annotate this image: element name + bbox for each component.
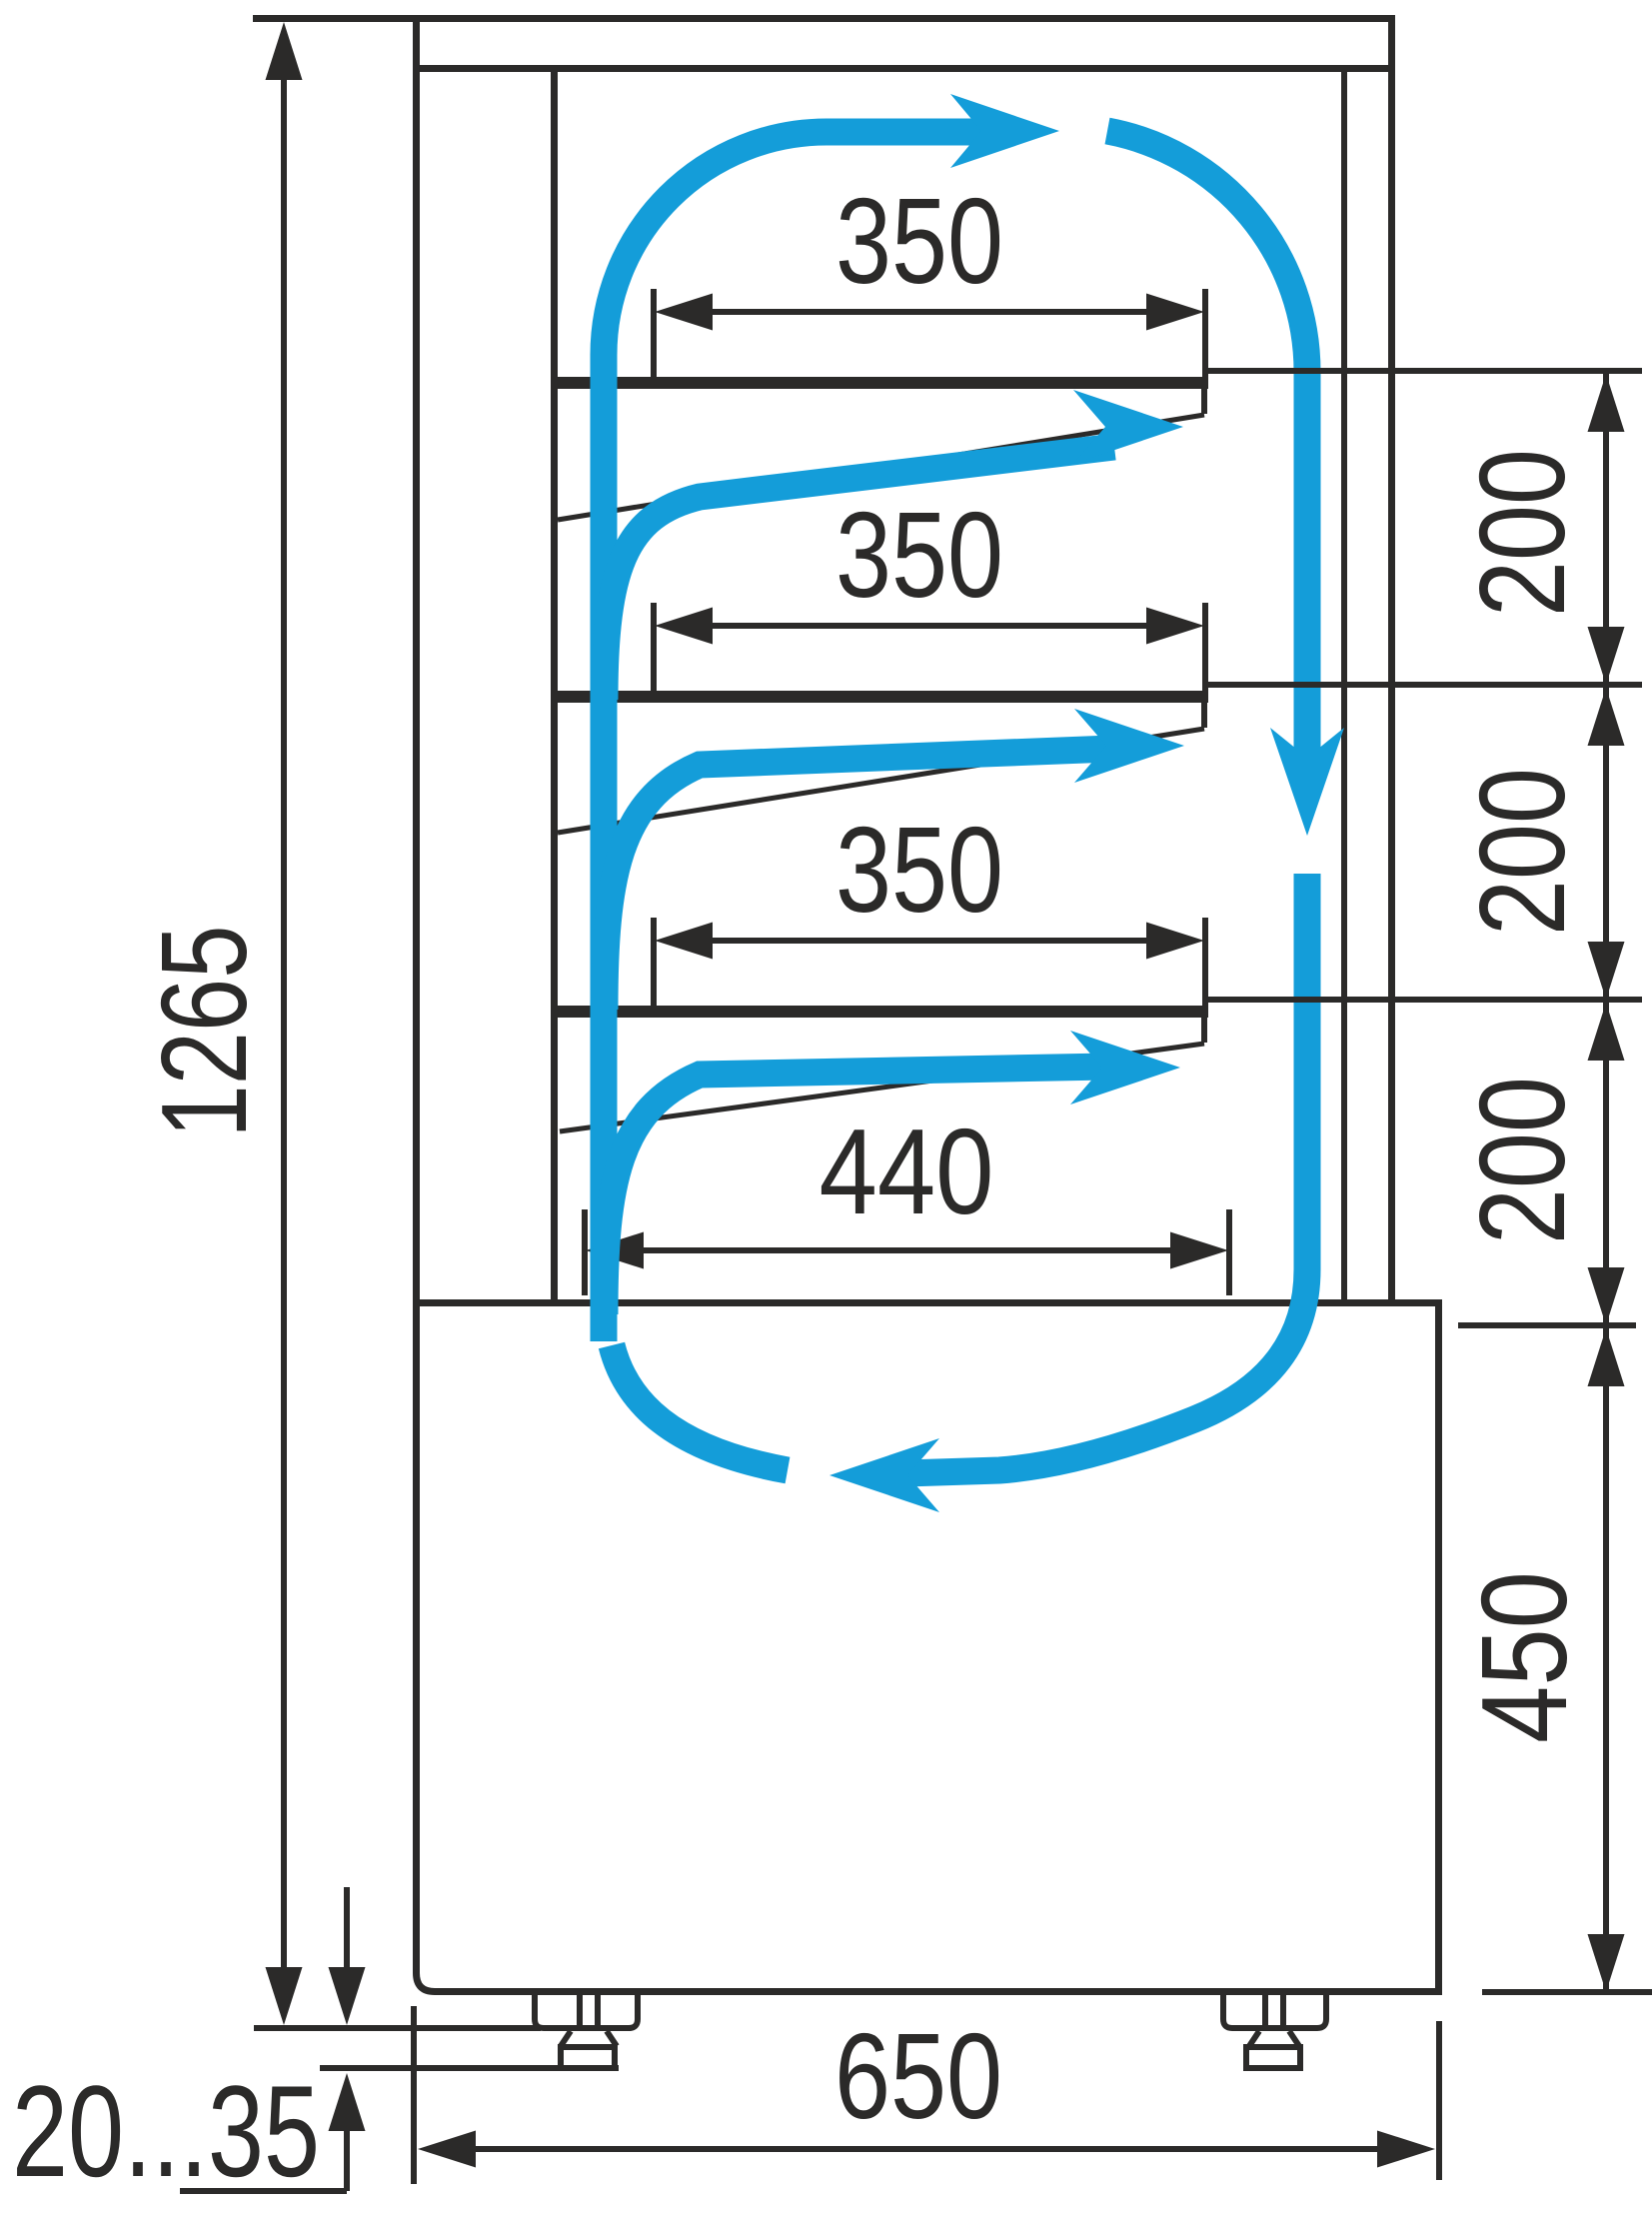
svg-text:1265: 1265 [136,926,272,1138]
svg-text:350: 350 [835,173,1003,309]
svg-text:200: 200 [1454,768,1590,936]
svg-text:200: 200 [1454,1077,1590,1244]
svg-text:440: 440 [820,1104,994,1239]
svg-text:20...35: 20...35 [12,2058,320,2204]
svg-text:200: 200 [1454,449,1590,617]
svg-text:450: 450 [1456,1571,1592,1743]
svg-text:350: 350 [835,802,1003,938]
svg-text:350: 350 [835,487,1003,623]
svg-text:650: 650 [834,2008,1002,2144]
